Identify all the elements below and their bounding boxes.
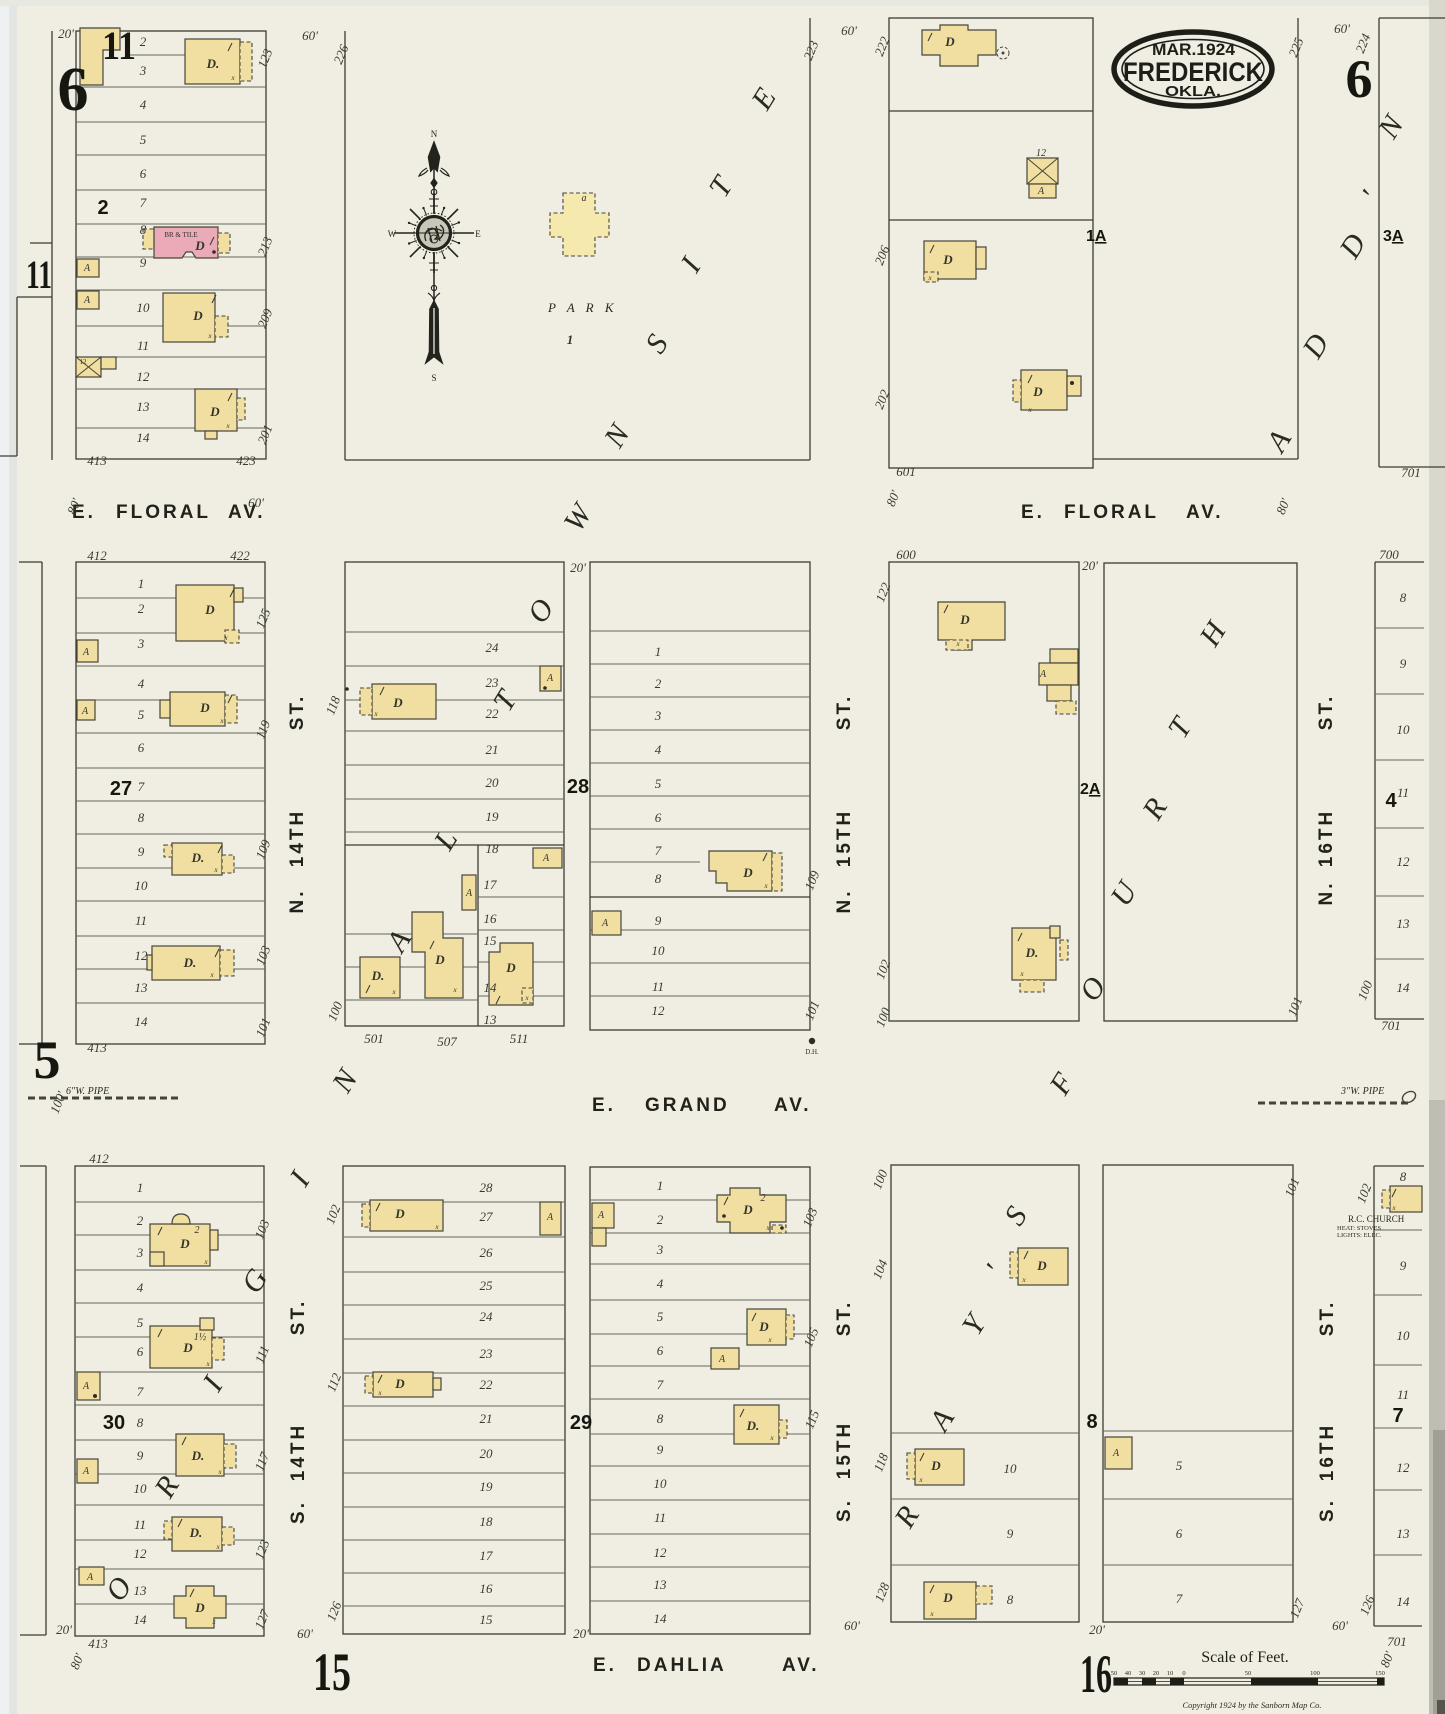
svg-text:9: 9: [138, 844, 145, 859]
svg-text:2: 2: [195, 1225, 200, 1236]
svg-text:9: 9: [137, 1448, 144, 1463]
svg-text:8: 8: [655, 871, 662, 886]
svg-text:601: 601: [896, 464, 916, 479]
svg-text:12: 12: [80, 358, 88, 366]
svg-text:412: 412: [87, 548, 107, 563]
svg-text:5: 5: [138, 707, 145, 722]
svg-text:S.: S.: [834, 1498, 855, 1522]
svg-text:8: 8: [1007, 1592, 1014, 1607]
svg-text:24: 24: [480, 1309, 494, 1324]
svg-text:A: A: [542, 853, 550, 864]
svg-text:10: 10: [652, 943, 666, 958]
svg-text:12: 12: [134, 1546, 148, 1561]
svg-text:14: 14: [1397, 1594, 1411, 1609]
svg-text:D: D: [1032, 384, 1043, 399]
svg-text:Scale of Feet.: Scale of Feet.: [1201, 1649, 1289, 1666]
svg-text:10: 10: [654, 1476, 668, 1491]
svg-text:27: 27: [480, 1209, 494, 1224]
svg-text:D: D: [179, 1236, 190, 1251]
svg-text:ST.: ST.: [834, 694, 855, 730]
svg-text:R.C. CHURCH: R.C. CHURCH: [1348, 1214, 1405, 1224]
svg-text:2: 2: [97, 197, 108, 219]
svg-text:14: 14: [654, 1611, 668, 1626]
svg-text:E.: E.: [593, 1655, 617, 1676]
svg-text:20': 20': [1089, 1622, 1105, 1637]
svg-text:11: 11: [654, 1510, 666, 1525]
svg-text:W: W: [388, 229, 397, 239]
svg-text:60': 60': [248, 495, 264, 510]
svg-text:4: 4: [657, 1276, 664, 1291]
svg-text:A: A: [82, 647, 90, 658]
svg-text:18: 18: [480, 1514, 494, 1529]
svg-text:16: 16: [480, 1581, 494, 1596]
svg-text:ST.: ST.: [288, 1299, 309, 1335]
svg-text:D.: D.: [371, 968, 385, 983]
svg-text:14: 14: [135, 1014, 149, 1029]
svg-text:6: 6: [138, 740, 145, 755]
svg-text:20': 20': [58, 26, 74, 41]
svg-text:HEAT: STOVES: HEAT: STOVES: [1337, 1225, 1382, 1232]
svg-text:D: D: [194, 238, 205, 253]
svg-text:14: 14: [484, 980, 498, 995]
svg-text:D: D: [209, 404, 220, 419]
svg-text:4: 4: [137, 1280, 144, 1295]
svg-text:20: 20: [1153, 1670, 1160, 1677]
svg-text:9: 9: [1400, 1258, 1407, 1273]
svg-text:A: A: [546, 673, 554, 684]
svg-text:5: 5: [1176, 1458, 1183, 1473]
svg-text:AV.: AV.: [782, 1655, 820, 1676]
svg-text:15TH: 15TH: [834, 1421, 855, 1479]
svg-text:11: 11: [137, 338, 149, 353]
svg-text:A: A: [82, 1381, 90, 1392]
svg-text:5: 5: [140, 132, 147, 147]
svg-text:D.: D.: [191, 1448, 205, 1463]
svg-text:D: D: [942, 252, 953, 267]
svg-text:1: 1: [567, 332, 574, 347]
svg-text:4: 4: [140, 97, 147, 112]
svg-text:A: A: [546, 1212, 554, 1223]
svg-text:D: D: [758, 1319, 769, 1334]
svg-text:6: 6: [657, 1343, 664, 1358]
svg-text:A: A: [718, 1354, 726, 1365]
svg-text:FLORAL: FLORAL: [116, 502, 211, 523]
svg-text:3: 3: [656, 1242, 664, 1257]
svg-text:E.: E.: [1021, 502, 1045, 523]
svg-text:D: D: [394, 1206, 405, 1221]
svg-text:S.: S.: [1317, 1498, 1338, 1522]
svg-text:413: 413: [87, 453, 107, 468]
svg-text:2: 2: [761, 1193, 766, 1204]
svg-text:9: 9: [140, 255, 147, 270]
svg-text:11: 11: [135, 913, 147, 928]
svg-text:8: 8: [1400, 590, 1407, 605]
svg-text:A: A: [82, 1466, 90, 1477]
svg-text:9: 9: [657, 1442, 664, 1457]
svg-text:24: 24: [486, 640, 500, 655]
svg-text:511: 511: [510, 1031, 529, 1046]
svg-text:1: 1: [657, 1178, 664, 1193]
svg-text:10: 10: [1004, 1461, 1018, 1476]
svg-text:ST.: ST.: [834, 1300, 855, 1336]
svg-text:17: 17: [484, 877, 498, 892]
svg-text:5: 5: [34, 1030, 61, 1090]
svg-text:422: 422: [230, 548, 250, 563]
svg-text:1: 1: [138, 576, 145, 591]
svg-text:9: 9: [655, 913, 662, 928]
svg-text:D.: D.: [1025, 945, 1039, 960]
svg-text:S.: S.: [288, 1500, 309, 1524]
svg-text:16: 16: [484, 911, 498, 926]
svg-text:N.: N.: [287, 889, 308, 914]
svg-text:10: 10: [1167, 1670, 1174, 1677]
svg-text:50: 50: [1245, 1670, 1252, 1677]
svg-text:D.: D.: [746, 1418, 760, 1433]
svg-text:AV.: AV.: [774, 1095, 812, 1116]
svg-text:ST.: ST.: [1317, 1300, 1338, 1336]
svg-text:12: 12: [654, 1545, 668, 1560]
svg-text:50: 50: [1111, 1670, 1118, 1677]
svg-text:1½: 1½: [194, 1332, 207, 1343]
svg-text:D: D: [434, 952, 445, 967]
svg-text:13: 13: [654, 1577, 668, 1592]
svg-text:60': 60': [297, 1626, 313, 1641]
svg-text:N: N: [431, 129, 438, 139]
svg-text:20: 20: [486, 775, 500, 790]
svg-text:22: 22: [486, 706, 500, 721]
svg-text:N.: N.: [834, 889, 855, 914]
svg-text:14: 14: [134, 1612, 148, 1627]
svg-text:A: A: [83, 263, 91, 274]
svg-text:5: 5: [657, 1309, 664, 1324]
svg-text:7: 7: [138, 779, 145, 794]
svg-text:P A R K: P A R K: [547, 300, 618, 315]
svg-text:413: 413: [87, 1040, 107, 1055]
svg-text:3: 3: [136, 1245, 144, 1260]
svg-text:10: 10: [1397, 1328, 1411, 1343]
svg-text:3: 3: [139, 63, 147, 78]
svg-text:D: D: [182, 1340, 193, 1355]
svg-text:423: 423: [236, 453, 256, 468]
svg-text:2A: 2A: [1080, 781, 1101, 798]
svg-text:1: 1: [655, 644, 662, 659]
svg-text:6: 6: [1176, 1526, 1183, 1541]
svg-text:20: 20: [480, 1446, 494, 1461]
svg-text:12: 12: [135, 948, 149, 963]
svg-text:11: 11: [652, 979, 664, 994]
svg-text:D.: D.: [183, 955, 197, 970]
svg-text:29: 29: [570, 1412, 592, 1434]
svg-text:16TH: 16TH: [1316, 809, 1337, 867]
svg-text:N.: N.: [1316, 881, 1337, 906]
svg-text:7: 7: [1176, 1591, 1183, 1606]
svg-text:13: 13: [137, 399, 151, 414]
svg-text:14TH: 14TH: [287, 809, 308, 867]
svg-text:501: 501: [364, 1031, 384, 1046]
svg-text:11: 11: [26, 252, 52, 297]
svg-text:A: A: [1112, 1448, 1120, 1459]
svg-text:D: D: [742, 1202, 753, 1217]
svg-text:20': 20': [1082, 558, 1098, 573]
svg-text:6: 6: [58, 56, 89, 124]
svg-text:8: 8: [657, 1411, 664, 1426]
svg-text:16: 16: [1080, 1644, 1112, 1704]
svg-text:60': 60': [302, 28, 318, 43]
svg-text:A: A: [601, 918, 609, 929]
svg-text:2: 2: [657, 1212, 664, 1227]
svg-text:D: D: [394, 1376, 405, 1391]
svg-text:14: 14: [137, 430, 151, 445]
svg-text:8: 8: [137, 1415, 144, 1430]
svg-text:GRAND: GRAND: [645, 1095, 730, 1116]
svg-text:D: D: [505, 960, 516, 975]
svg-text:100: 100: [1310, 1670, 1320, 1677]
svg-text:14TH: 14TH: [288, 1423, 309, 1481]
svg-text:0: 0: [1182, 1670, 1185, 1677]
svg-text:2: 2: [138, 601, 145, 616]
svg-text:507: 507: [437, 1034, 457, 1049]
svg-text:17: 17: [480, 1548, 494, 1563]
svg-text:21: 21: [486, 742, 499, 757]
svg-text:D: D: [1036, 1258, 1047, 1273]
svg-text:21: 21: [480, 1411, 493, 1426]
svg-text:12: 12: [137, 369, 151, 384]
svg-text:D: D: [944, 34, 955, 49]
svg-text:D: D: [392, 695, 403, 710]
svg-text:701: 701: [1401, 465, 1421, 480]
svg-text:6: 6: [137, 1344, 144, 1359]
svg-text:30: 30: [103, 1412, 125, 1434]
svg-text:8: 8: [1400, 1169, 1407, 1184]
svg-text:D: D: [942, 1590, 953, 1605]
svg-text:8: 8: [140, 222, 147, 237]
svg-text:D: D: [204, 602, 215, 617]
svg-text:28: 28: [480, 1180, 494, 1195]
svg-text:A: A: [83, 295, 91, 306]
svg-text:A: A: [86, 1572, 94, 1583]
svg-text:A: A: [1037, 186, 1045, 197]
svg-text:12: 12: [1397, 1460, 1411, 1475]
svg-text:LIGHTS: ELEC.: LIGHTS: ELEC.: [1337, 1232, 1382, 1239]
svg-text:A: A: [81, 706, 89, 717]
svg-text:11: 11: [1397, 785, 1409, 800]
svg-text:700: 700: [1379, 547, 1399, 562]
svg-text:3: 3: [654, 708, 662, 723]
svg-text:11: 11: [102, 23, 136, 68]
svg-text:15: 15: [480, 1612, 494, 1627]
svg-text:A: A: [1039, 669, 1047, 680]
svg-text:30: 30: [1139, 1670, 1146, 1677]
svg-text:40: 40: [1125, 1670, 1132, 1677]
svg-text:600: 600: [896, 547, 916, 562]
svg-text:AV.: AV.: [1186, 502, 1224, 523]
svg-text:D.: D.: [191, 850, 205, 865]
svg-text:4: 4: [655, 742, 662, 757]
svg-text:13: 13: [484, 1012, 498, 1027]
svg-text:10: 10: [134, 1481, 148, 1496]
svg-text:D: D: [192, 308, 203, 323]
svg-text:25: 25: [480, 1278, 494, 1293]
svg-text:412: 412: [89, 1151, 109, 1166]
svg-text:60': 60': [1334, 21, 1350, 36]
svg-text:11: 11: [1397, 1387, 1409, 1402]
svg-text:22: 22: [480, 1377, 494, 1392]
svg-text:11: 11: [134, 1517, 146, 1532]
svg-text:2: 2: [655, 676, 662, 691]
svg-text:13: 13: [1397, 1526, 1411, 1541]
svg-text:701: 701: [1381, 1018, 1401, 1033]
svg-text:9: 9: [1400, 656, 1407, 671]
svg-text:6: 6: [1346, 49, 1373, 109]
svg-text:4: 4: [138, 676, 145, 691]
svg-text:4: 4: [1385, 790, 1397, 812]
svg-text:FLORAL: FLORAL: [1064, 502, 1159, 523]
svg-text:a: a: [582, 193, 587, 204]
svg-text:OKLA.: OKLA.: [1165, 83, 1221, 100]
svg-text:12: 12: [652, 1003, 666, 1018]
svg-text:7: 7: [1392, 1405, 1403, 1427]
svg-text:2: 2: [140, 34, 147, 49]
svg-text:60': 60': [1332, 1618, 1348, 1633]
svg-text:413: 413: [88, 1636, 108, 1651]
svg-text:60': 60': [844, 1618, 860, 1633]
svg-text:1: 1: [137, 1180, 144, 1195]
svg-text:7: 7: [655, 843, 662, 858]
svg-text:6: 6: [140, 166, 147, 181]
svg-text:D.H.: D.H.: [805, 1048, 819, 1056]
svg-text:6: 6: [655, 810, 662, 825]
svg-text:7: 7: [140, 195, 147, 210]
svg-text:10: 10: [1397, 722, 1411, 737]
svg-text:D: D: [199, 700, 210, 715]
svg-text:12: 12: [1397, 854, 1411, 869]
svg-text:19: 19: [480, 1479, 494, 1494]
svg-text:E.: E.: [592, 1095, 616, 1116]
svg-text:16TH: 16TH: [1317, 1423, 1338, 1481]
svg-text:2: 2: [137, 1213, 144, 1228]
svg-text:D.: D.: [206, 56, 220, 71]
svg-text:701: 701: [1387, 1634, 1407, 1649]
svg-text:13: 13: [135, 980, 149, 995]
svg-text:19: 19: [486, 809, 500, 824]
svg-text:D: D: [930, 1458, 941, 1473]
svg-text:DAHLIA: DAHLIA: [637, 1655, 727, 1676]
svg-text:S: S: [431, 373, 436, 383]
svg-text:3: 3: [137, 636, 145, 651]
svg-text:10: 10: [137, 300, 151, 315]
svg-text:18: 18: [486, 841, 500, 856]
svg-text:A: A: [465, 888, 473, 899]
svg-text:1A: 1A: [1086, 228, 1107, 245]
svg-text:15: 15: [484, 933, 498, 948]
svg-text:150: 150: [1375, 1670, 1385, 1677]
svg-text:13: 13: [1397, 916, 1411, 931]
svg-text:27: 27: [110, 778, 132, 800]
svg-text:5: 5: [137, 1315, 144, 1330]
svg-text:10: 10: [135, 878, 149, 893]
svg-text:D: D: [959, 612, 970, 627]
svg-text:20': 20': [573, 1626, 589, 1641]
svg-text:6"W. PIPE: 6"W. PIPE: [66, 1086, 109, 1097]
svg-text:8: 8: [1086, 1411, 1097, 1433]
svg-text:15: 15: [313, 1642, 351, 1702]
svg-text:D.: D.: [189, 1525, 203, 1540]
svg-text:5: 5: [655, 776, 662, 791]
svg-text:26: 26: [480, 1245, 494, 1260]
svg-text:3"W. PIPE: 3"W. PIPE: [1340, 1086, 1384, 1097]
svg-text:20': 20': [56, 1622, 72, 1637]
svg-text:3A: 3A: [1383, 228, 1404, 245]
svg-text:ST.: ST.: [287, 694, 308, 730]
svg-text:28: 28: [567, 776, 589, 798]
svg-text:20': 20': [570, 560, 586, 575]
svg-text:BR & TILE: BR & TILE: [164, 231, 197, 239]
svg-text:ST.: ST.: [1316, 694, 1337, 730]
svg-text:60': 60': [841, 23, 857, 38]
svg-text:15TH: 15TH: [834, 809, 855, 867]
svg-text:7: 7: [137, 1384, 144, 1399]
svg-text:D: D: [742, 865, 753, 880]
svg-text:7: 7: [657, 1377, 664, 1392]
svg-text:E: E: [475, 229, 481, 239]
svg-text:12: 12: [1036, 148, 1046, 159]
svg-text:9: 9: [1007, 1526, 1014, 1541]
svg-text:14: 14: [1397, 980, 1411, 995]
svg-text:8: 8: [138, 810, 145, 825]
svg-text:23: 23: [480, 1346, 494, 1361]
svg-text:Copyright 1924 by the Sanborn: Copyright 1924 by the Sanborn Map Co.: [1182, 1700, 1321, 1710]
svg-text:A: A: [597, 1210, 605, 1221]
svg-text:D: D: [194, 1600, 205, 1615]
